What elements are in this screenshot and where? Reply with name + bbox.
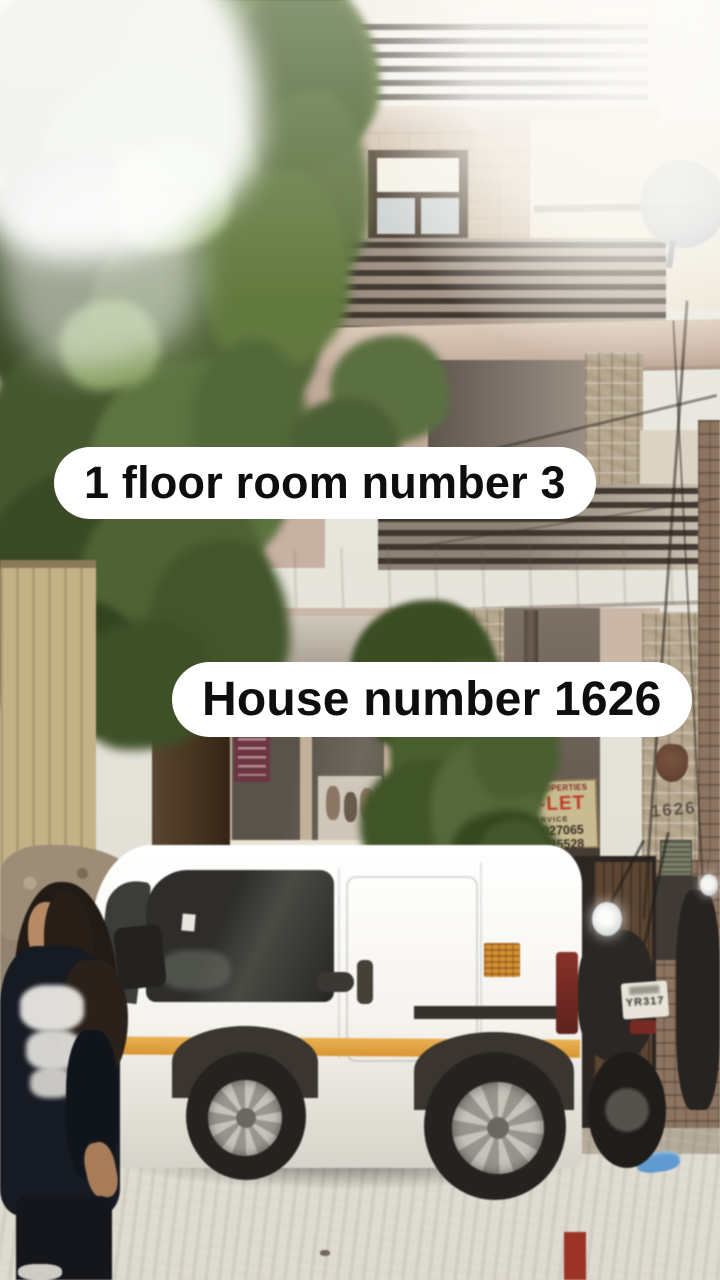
bike-headlight — [592, 902, 622, 936]
window-reflection — [160, 950, 230, 990]
photo-scene: ARYA PROPERTIES TO-LET SERVICE 844702706… — [0, 0, 720, 1280]
van-door-handle — [316, 972, 354, 992]
person-shoe — [18, 1264, 62, 1280]
bike-plate: YR317 — [621, 980, 669, 1019]
bike-rear-wheel — [588, 1052, 666, 1168]
front-hub — [236, 1108, 256, 1128]
scooter-mirror — [700, 874, 718, 896]
rear-hub — [487, 1117, 509, 1139]
sun-flare — [0, 150, 200, 370]
street-photo: ARYA PROPERTIES TO-LET SERVICE 844702706… — [0, 0, 720, 1280]
door-seam — [338, 868, 340, 1058]
van-reflector — [484, 943, 520, 977]
caption-top-text: 1 floor room number 3 — [84, 457, 566, 509]
road-stone — [320, 1250, 330, 1256]
pillar-house-number-text: 1626 — [650, 798, 697, 821]
poster-figure — [326, 786, 340, 820]
poster-figure — [344, 792, 357, 822]
plate-top-smudge — [629, 985, 659, 995]
tshirt-print — [20, 985, 84, 1031]
caption-bubble-bottom: House number 1626 — [172, 662, 692, 737]
dash-paper — [181, 913, 195, 931]
overexposure-haze — [360, 0, 720, 360]
plate-number: YR317 — [622, 994, 669, 1009]
red-pole — [564, 1232, 586, 1280]
scooter-body — [676, 890, 720, 1110]
caption-bottom-text: House number 1626 — [202, 672, 662, 727]
van-sliding-handle — [357, 960, 373, 1004]
caption-bubble-top: 1 floor room number 3 — [54, 447, 596, 519]
bike-tail-light — [630, 1020, 656, 1034]
van-rub-strip — [414, 1006, 578, 1019]
van-tail-light — [556, 952, 578, 1034]
